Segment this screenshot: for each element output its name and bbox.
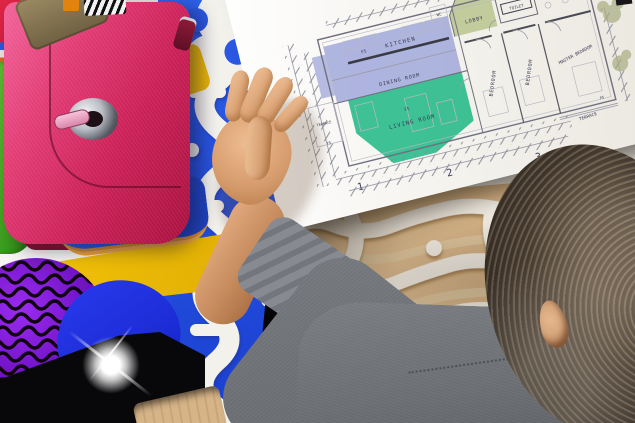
room-label-bedroom-1: BEDROOM [489, 70, 499, 97]
photo-collage: F5 KITCHEN DINING ROOM F5 LIVING ROOM LO… [0, 0, 635, 423]
orange-patch [63, 0, 79, 11]
area-tag-p5: P5 [599, 95, 604, 100]
room-label-bedroom-2: BEDROOM [525, 59, 535, 86]
room-label-wc: WC [436, 11, 442, 17]
zebra-pattern-patch [84, 0, 127, 16]
lens-flare-glow [82, 336, 140, 394]
twist-lock-clasp-icon [68, 98, 118, 140]
